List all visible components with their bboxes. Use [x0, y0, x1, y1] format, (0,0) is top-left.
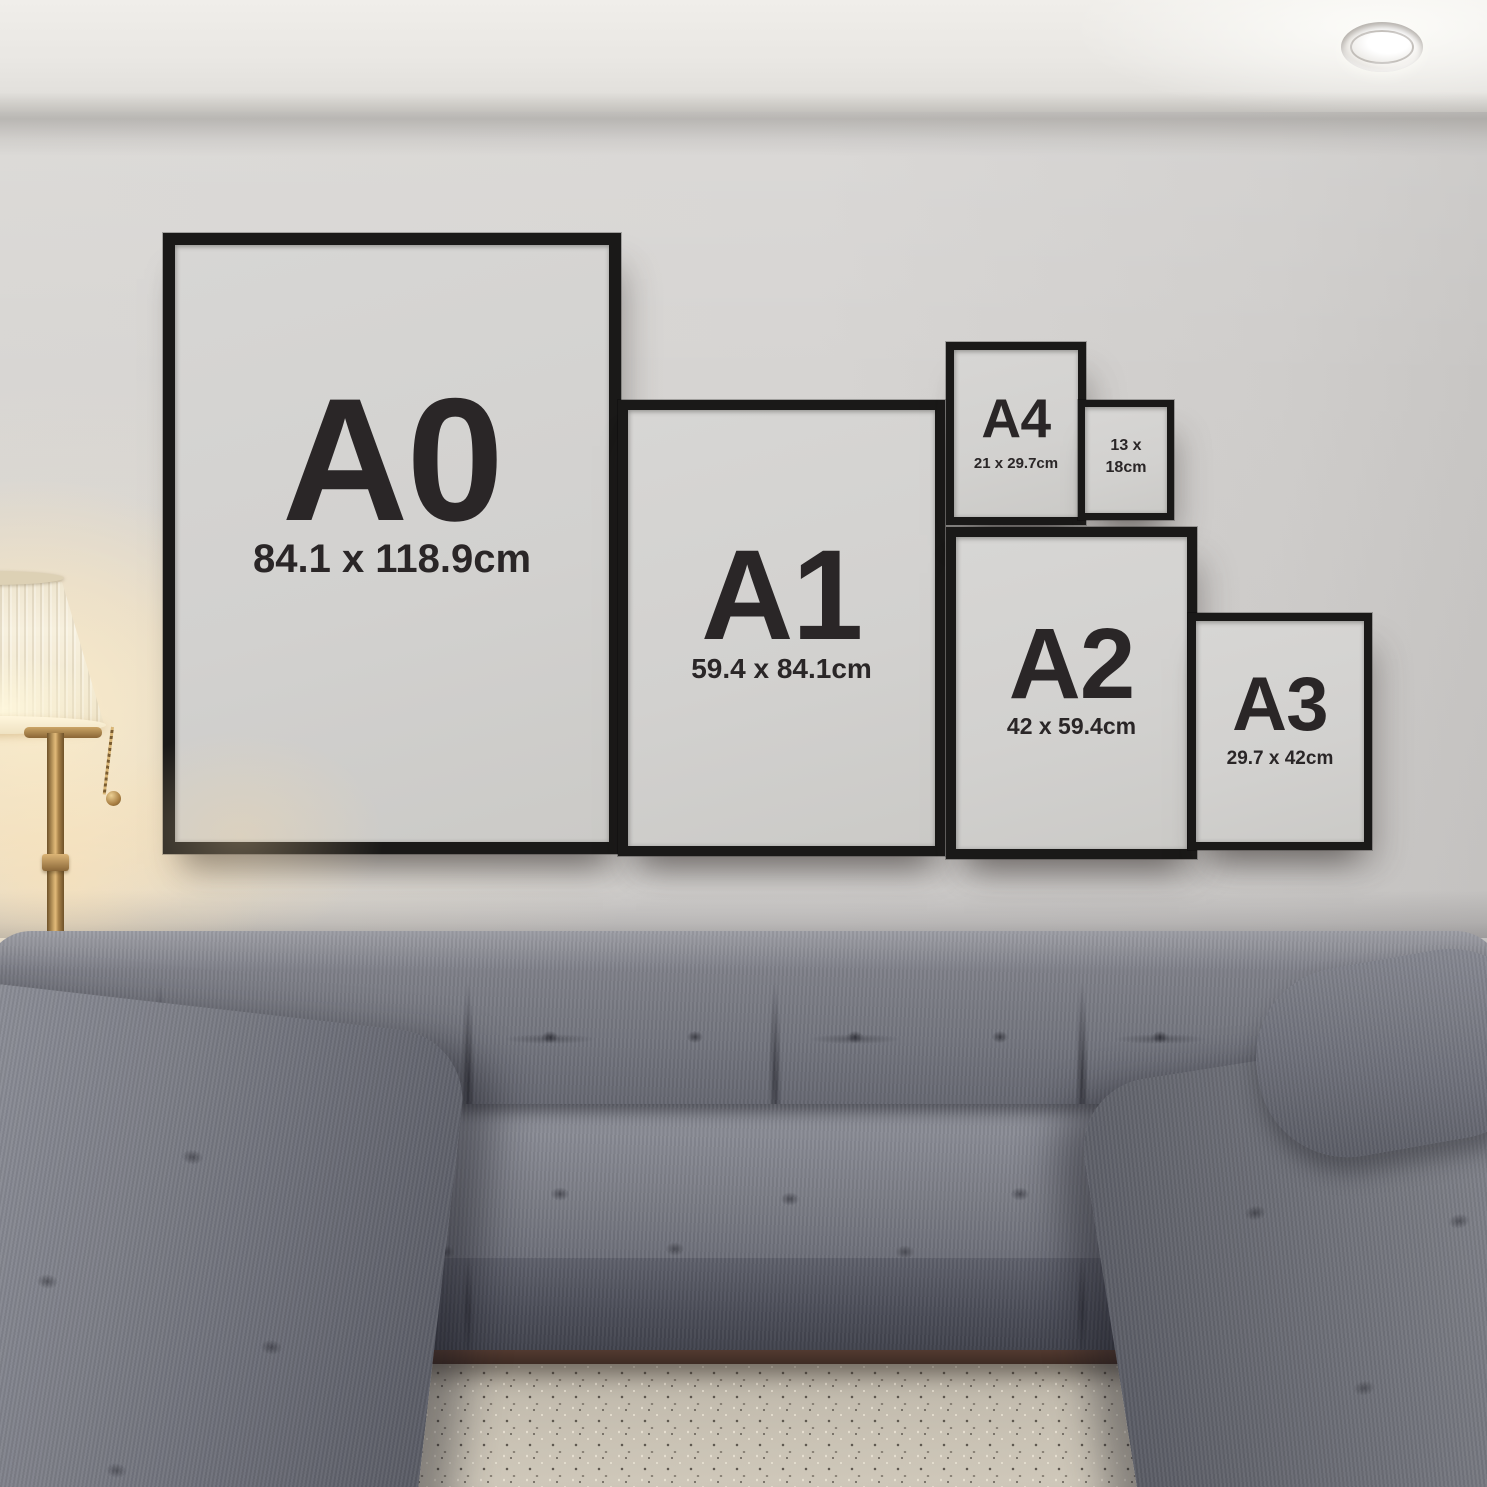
- frame-a3: A3 29.7 x 42cm: [1188, 613, 1372, 850]
- frame-a2: A2 42 x 59.4cm: [946, 527, 1197, 859]
- frame-a1-size: 59.4 x 84.1cm: [628, 651, 935, 687]
- frame-a2-size: 42 x 59.4cm: [956, 712, 1187, 742]
- frame-13x18-size-line1: 13 x: [1110, 437, 1141, 454]
- frame-a3-label: A3: [1196, 667, 1364, 743]
- frame-13x18-size-line2: 18cm: [1106, 459, 1147, 476]
- frame-a1: A1 59.4 x 84.1cm: [618, 400, 945, 856]
- lamp-pole-joint: [42, 854, 69, 871]
- ceiling-wall-shadow: [0, 92, 1487, 156]
- frame-a4: A4 21 x 29.7cm: [946, 342, 1086, 525]
- frame-a0-label: A0: [175, 373, 609, 548]
- frame-a3-size: 29.7 x 42cm: [1196, 747, 1364, 772]
- sofa-left-chaise: [0, 971, 470, 1487]
- frame-a4-size: 21 x 29.7cm: [954, 454, 1078, 474]
- frame-a4-label: A4: [954, 391, 1078, 446]
- frame-a0: A0 84.1 x 118.9cm: [163, 233, 621, 854]
- living-room-scene: A0 84.1 x 118.9cm A1 59.4 x 84.1cm A4 21…: [0, 0, 1487, 1487]
- frame-a0-size: 84.1 x 118.9cm: [175, 533, 609, 585]
- sofa-fabric-texture: [0, 971, 470, 1487]
- frame-a2-label: A2: [956, 614, 1187, 714]
- frame-13x18-size: 13 x 18cm: [1085, 435, 1167, 478]
- lamp-pull-chain-ball: [106, 791, 121, 806]
- frame-a1-label: A1: [628, 532, 935, 660]
- recessed-ceiling-light-icon: [1341, 22, 1423, 72]
- frame-13x18: 13 x 18cm: [1078, 400, 1174, 520]
